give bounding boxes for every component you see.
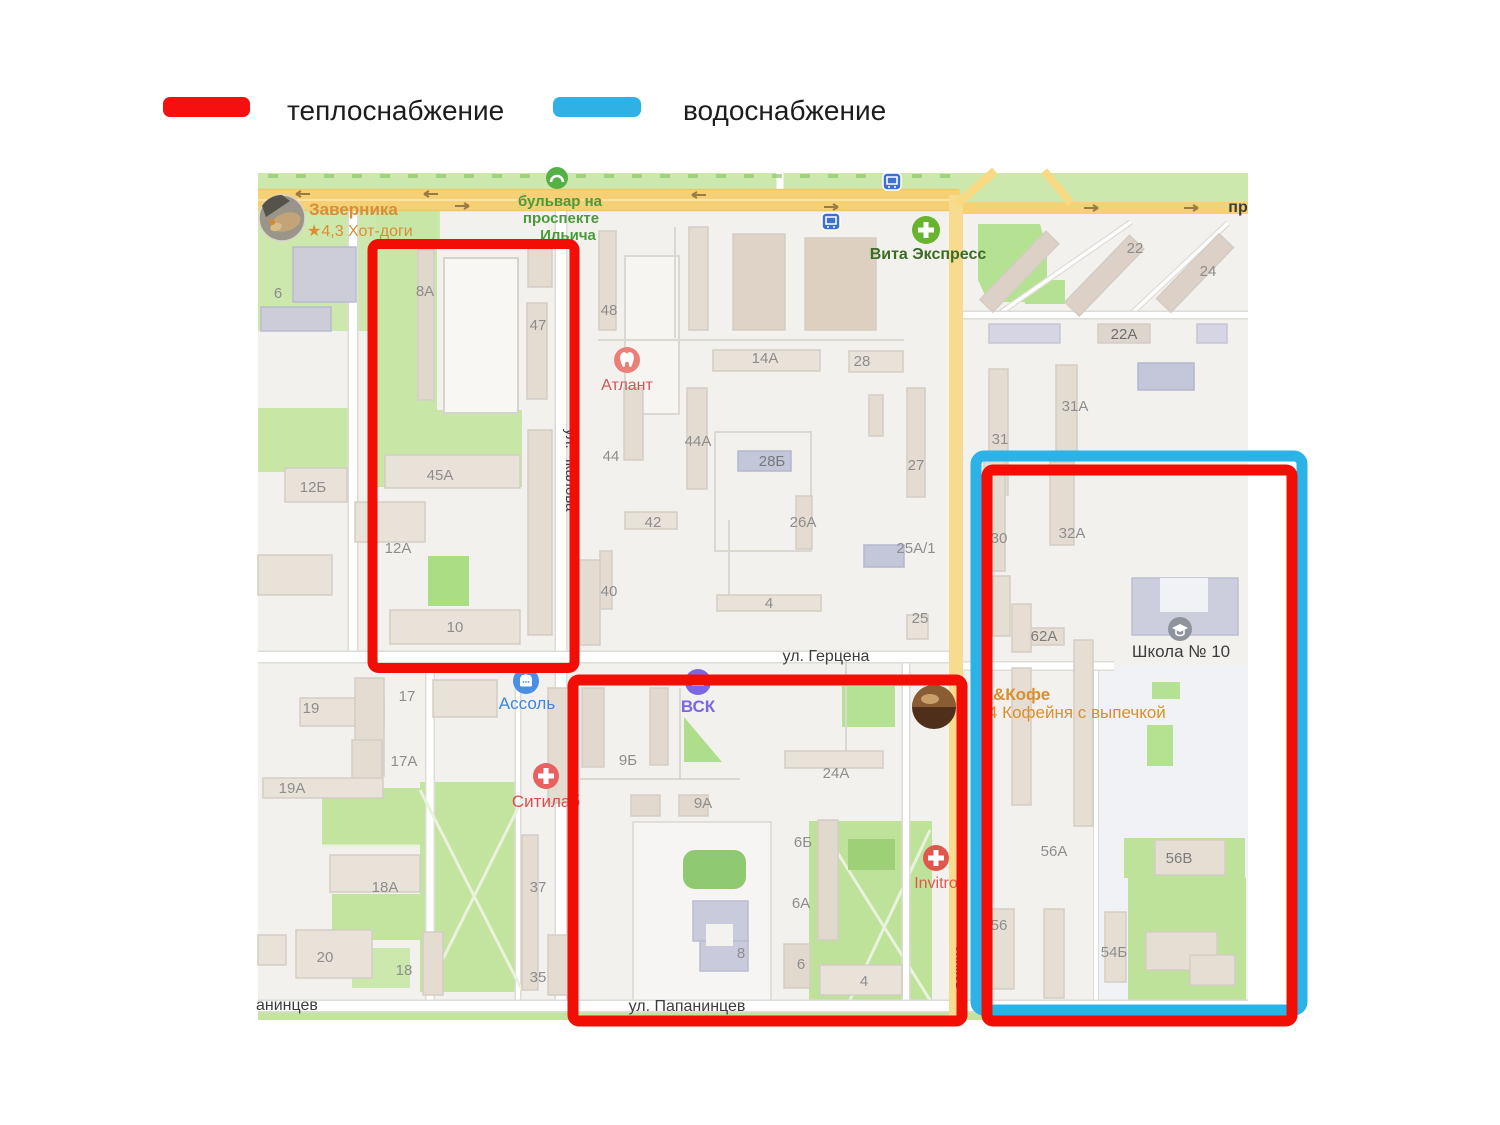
svg-text:12Б: 12Б [300,479,327,496]
svg-text:54Б: 54Б [1101,944,1128,961]
svg-text:32A: 32A [1059,525,1086,542]
svg-text:Школа № 10: Школа № 10 [1132,642,1230,661]
svg-text:12A: 12A [385,540,412,557]
svg-text:6: 6 [797,956,805,973]
svg-text:4: 4 [860,973,868,990]
svg-text:42: 42 [645,514,662,531]
svg-text:4 Кофейня с выпечкой: 4 Кофейня с выпечкой [988,703,1166,722]
svg-text:22A: 22A [1111,326,1138,343]
svg-text:14A: 14A [752,350,779,367]
svg-text:56: 56 [991,917,1008,934]
svg-text:17: 17 [399,688,416,705]
svg-text:24: 24 [1200,263,1217,280]
svg-text:бульвар на: бульвар на [518,193,603,210]
svg-text:40: 40 [601,583,618,600]
svg-text:10: 10 [447,619,464,636]
svg-text:теплоснабжение: теплоснабжение [287,95,504,126]
svg-text:56В: 56В [1166,850,1193,867]
svg-text:37: 37 [530,879,547,896]
svg-text:26A: 26A [790,514,817,531]
svg-text:24A: 24A [823,765,850,782]
svg-text:проспекте: проспекте [523,210,599,227]
svg-text:9A: 9A [694,795,712,812]
svg-text:Ассоль: Ассоль [499,694,556,713]
svg-text:19A: 19A [279,780,306,797]
svg-text:27: 27 [908,457,925,474]
svg-text:28Б: 28Б [759,453,786,470]
svg-text:4: 4 [765,595,773,612]
svg-text:19: 19 [303,700,320,717]
svg-text:31A: 31A [1062,398,1089,415]
svg-text:6Б: 6Б [794,834,812,851]
svg-text:ВСК: ВСК [681,697,716,716]
svg-text:28: 28 [854,353,871,370]
svg-text:6A: 6A [792,895,810,912]
svg-text:48: 48 [601,302,618,319]
svg-text:56A: 56A [1041,843,1068,860]
svg-text:Атлант: Атлант [601,377,653,394]
svg-text:8A: 8A [416,283,434,300]
svg-text:8: 8 [737,945,745,962]
svg-text:★4,3 Хот-доги: ★4,3 Хот-доги [307,223,413,240]
svg-text:44A: 44A [685,433,712,450]
svg-text:30: 30 [991,530,1008,547]
svg-text:ул. Папанинцев: ул. Папанинцев [629,998,746,1015]
svg-text:44: 44 [603,448,620,465]
svg-text:9Б: 9Б [619,752,637,769]
svg-text:&Кофе: &Кофе [993,685,1050,704]
svg-text:47: 47 [530,317,547,334]
svg-text:18: 18 [396,962,413,979]
svg-text:пр: пр [1228,199,1248,216]
svg-text:18A: 18A [372,879,399,896]
svg-text:22: 22 [1127,240,1144,257]
svg-text:45A: 45A [427,467,454,484]
svg-text:62A: 62A [1031,628,1058,645]
svg-text:35: 35 [530,969,547,986]
svg-text:31: 31 [992,431,1009,448]
svg-text:Invitro: Invitro [914,875,958,892]
svg-text:6: 6 [274,285,282,302]
svg-text:25: 25 [912,610,929,627]
svg-text:анинцев: анинцев [256,997,318,1014]
svg-text:20: 20 [317,949,334,966]
svg-text:ул. Герцена: ул. Герцена [783,648,870,665]
svg-text:17A: 17A [391,753,418,770]
svg-text:водоснабжение: водоснабжение [683,95,886,126]
svg-text:25А/1: 25А/1 [896,540,935,557]
svg-text:Заверника: Заверника [309,200,398,219]
svg-text:Вита Экспресс: Вита Экспресс [870,246,987,263]
